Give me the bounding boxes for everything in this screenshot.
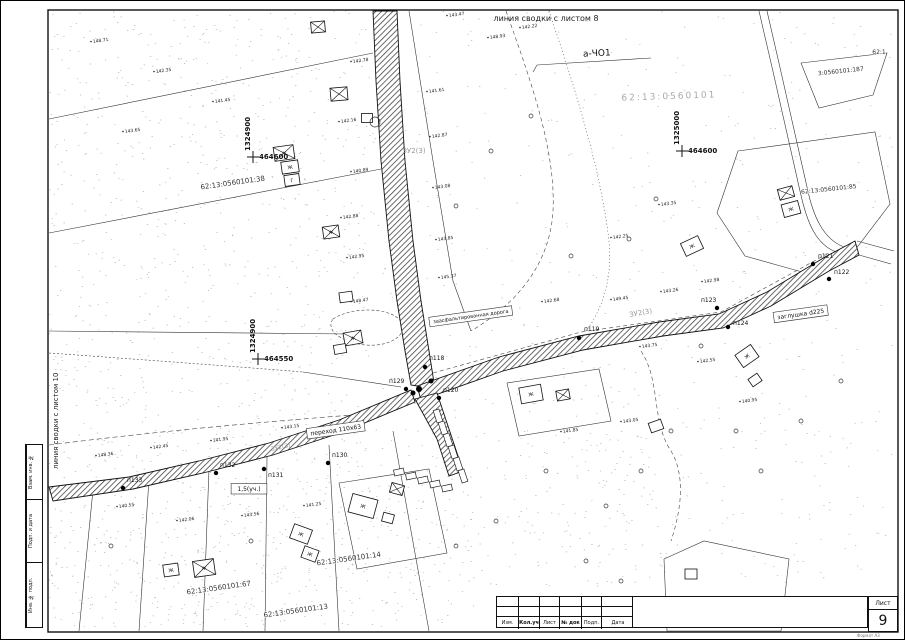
elevation-label: 148.71 <box>92 37 109 45</box>
tree-circle-icon <box>799 419 803 423</box>
stamp-cell: Подп. и дата <box>25 500 43 563</box>
survey-point <box>121 486 125 490</box>
survey-point-label: п133 <box>127 477 143 484</box>
elevation-label: 143.47 <box>448 11 465 19</box>
building: Ж <box>781 201 801 218</box>
building-outline <box>362 114 373 123</box>
elevation-label: 142.87 <box>431 132 448 140</box>
elevation-point <box>340 217 342 219</box>
elevation-label: 142.95 <box>348 253 365 261</box>
survey-point-label: п119 <box>584 326 600 333</box>
parcel-boundary <box>79 490 93 631</box>
elevation-point <box>150 447 152 449</box>
title-block-empty-cell <box>519 607 540 617</box>
elevation-label: 142.16 <box>340 117 357 125</box>
survey-point-label: п131 <box>268 472 284 479</box>
grid-easting-label: 464600 <box>259 153 288 161</box>
title-block-table: Изм.Кол.учЛист№ докПодп.Дата <box>496 596 633 628</box>
parcel-boundary <box>265 457 267 631</box>
elevation-label: 142.55 <box>699 357 716 365</box>
elevation-label: 141.95 <box>212 436 229 444</box>
building <box>556 389 571 401</box>
elevation-point <box>212 101 214 103</box>
tree-circle-icon <box>759 469 763 473</box>
elevation-label: 140.55 <box>118 502 135 510</box>
contour-line <box>549 11 610 331</box>
elevation-point <box>303 505 305 507</box>
junction-node <box>416 386 422 392</box>
elevation-label: 142.25 <box>612 233 629 241</box>
survey-point-label: п120 <box>443 387 459 394</box>
title-block-empty-cell <box>540 607 560 617</box>
crossing-step <box>417 476 428 484</box>
elevation-label: 148.93 <box>489 33 506 41</box>
building <box>330 87 348 101</box>
building: Ж <box>735 344 759 367</box>
elevation-point <box>176 520 178 522</box>
survey-point-label: п129 <box>389 378 405 385</box>
tree-circle-icon <box>489 149 493 153</box>
parcel-boundary <box>533 65 537 72</box>
elevation-label: 141.45 <box>214 97 231 105</box>
elevation-point <box>620 421 622 423</box>
sheet-label: Лист <box>869 597 897 610</box>
title-block-empty-cell <box>497 607 519 617</box>
elevation-label: 142.98 <box>703 277 720 285</box>
stamp-blank <box>35 445 42 499</box>
title-block-empty-cell <box>560 607 582 617</box>
parcel-boundary <box>717 132 890 272</box>
title-block-column-label: Подп. <box>582 617 602 629</box>
tree-circle-icon <box>454 204 458 208</box>
crossing-step <box>393 468 404 476</box>
elevation-label: 143.65 <box>124 127 141 135</box>
elevation-point <box>660 291 662 293</box>
elevation-point <box>350 171 352 173</box>
title-block-column-label: Дата <box>602 617 634 629</box>
cadastral-number-label: 62:1 <box>872 49 886 56</box>
tree-circle-icon <box>699 344 703 348</box>
tree-circle-icon <box>639 469 643 473</box>
building-outline <box>648 419 664 433</box>
survey-point <box>404 387 408 391</box>
building-outline <box>748 373 762 387</box>
road-hatched <box>417 241 859 400</box>
title-block-empty-cell <box>602 607 634 617</box>
elevation-point <box>432 187 434 189</box>
elevation-point <box>338 121 340 123</box>
title-block-column-label: Изм. <box>497 617 519 629</box>
annotation: а-ЧО1 <box>583 48 611 59</box>
tree-circle-icon <box>494 519 498 523</box>
tree-circle-icon <box>569 254 573 258</box>
elevation-label: 142.06 <box>178 516 195 524</box>
survey-point <box>715 306 719 310</box>
contour-line <box>641 351 680 541</box>
elevation-label: 143.56 <box>243 511 260 519</box>
parcel-boundary <box>393 431 429 631</box>
survey-point-label: п124 <box>733 320 749 327</box>
elevation-point <box>350 61 352 63</box>
parcel-boundary <box>759 11 839 253</box>
title-block-column-label: № док <box>560 617 582 629</box>
title-block-empty-cell <box>560 597 582 607</box>
elevation-label: 140.89 <box>352 167 369 175</box>
crossing-step <box>405 472 416 480</box>
cadastral-number-label: 62:13:0560101:85 <box>801 183 857 196</box>
parcel-boundary <box>49 53 373 119</box>
building: Ж <box>192 559 215 578</box>
elevation-point <box>446 15 448 17</box>
title-block-empty-cell <box>519 597 540 607</box>
parcel-boundary <box>49 169 381 233</box>
annotation-text: 1,5(уч.) <box>237 486 260 493</box>
survey-point <box>262 467 266 471</box>
elevation-label: 141.85 <box>562 427 579 435</box>
title-block-empty-cell <box>582 607 602 617</box>
title-block-main-cell <box>633 596 868 628</box>
elevation-point <box>241 515 243 517</box>
elevation-point <box>610 237 612 239</box>
match-line-label-top: линия сводки с листом 8 <box>493 14 598 23</box>
elevation-label: 143.26 <box>662 287 679 295</box>
annotation: заглушка d225 <box>773 305 828 323</box>
elevation-label: 140.95 <box>741 397 758 405</box>
tree-circle-icon <box>249 539 253 543</box>
grid-easting-label: 464600 <box>688 147 717 155</box>
stamp-cell: Инв. № подл. <box>25 563 43 628</box>
building <box>382 512 395 524</box>
annotation: ЗУ2(3) <box>629 307 653 319</box>
tree-circle-icon <box>604 504 608 508</box>
survey-point <box>577 336 581 340</box>
building <box>648 419 664 433</box>
building: Ж <box>348 493 378 518</box>
sheet-number-box: Лист 9 <box>868 596 898 632</box>
survey-point <box>827 277 831 281</box>
elevation-point <box>122 131 124 133</box>
parcel-boundary <box>329 445 339 631</box>
elevation-point <box>560 431 562 433</box>
elevation-point <box>438 277 440 279</box>
title-block-empty-cell <box>602 597 634 607</box>
parcel-boundary <box>203 469 209 631</box>
elevation-label: 142.45 <box>152 443 169 451</box>
elevation-label: 142.68 <box>543 297 560 305</box>
tree-circle-icon <box>109 544 113 548</box>
parcel-boundary <box>303 372 401 387</box>
title-block-empty-cell <box>497 597 519 607</box>
tree-circle-icon <box>734 429 738 433</box>
elevation-point <box>116 506 118 508</box>
grid-northing-label: 1325000 <box>673 111 681 145</box>
parcel-boundary <box>49 331 347 334</box>
road-hatched <box>373 11 435 389</box>
parcel-boundary <box>139 479 149 631</box>
building: Г <box>284 174 300 187</box>
elevation-point <box>350 301 352 303</box>
coordinate-cross: 1324900464550 <box>249 319 293 365</box>
annotation-text: ЗУ2(3) <box>402 147 425 155</box>
annotation-text: а-ЧО1 <box>583 48 611 59</box>
title-block-column-label: Лист <box>540 617 560 629</box>
crossing-step <box>441 484 452 492</box>
building <box>777 186 794 201</box>
elevation-label: 141.25 <box>305 501 322 509</box>
parcel-boundary <box>801 53 887 108</box>
building-outline <box>685 569 697 579</box>
elevation-label: 142.22 <box>521 23 538 31</box>
stamp-label: Взам. инв. № <box>26 445 35 499</box>
survey-point <box>811 262 815 266</box>
elevation-point <box>90 41 92 43</box>
building: Ж <box>163 563 180 577</box>
coordinate-cross: 1324900464600 <box>244 117 288 163</box>
elevation-point <box>739 401 741 403</box>
title-block-column-label: Кол.уч <box>519 617 540 629</box>
tree-circle-icon <box>669 429 673 433</box>
elevation-point <box>541 301 543 303</box>
stamp-label: Инв. № подл. <box>26 563 35 627</box>
stamp-blank <box>35 563 42 627</box>
elevation-label: 141.61 <box>428 87 445 95</box>
building: Ж <box>519 384 543 404</box>
elevation-point <box>95 455 97 457</box>
elevation-label: 143.75 <box>641 342 658 350</box>
building <box>333 344 346 355</box>
elevation-label: 149.45 <box>612 295 629 303</box>
building <box>685 569 697 579</box>
contour-line <box>331 310 403 345</box>
elevation-point <box>519 27 521 29</box>
cadastral-number-label: 62:13:0560101:14 <box>316 550 382 567</box>
title-block-empty-cell <box>582 597 602 607</box>
title-block-empty-cell <box>540 597 560 607</box>
elevation-label: 142.88 <box>342 213 359 221</box>
crossing-step <box>458 469 468 483</box>
grid-easting-label: 464550 <box>264 355 293 363</box>
elevation-point <box>639 346 641 348</box>
stamp-strip: Взам. инв. № Подп. и дата Инв. № подл. <box>25 444 43 628</box>
survey-point <box>437 396 441 400</box>
survey-point-label: п121 <box>818 253 834 260</box>
tree-circle-icon <box>839 379 843 383</box>
survey-point <box>214 471 218 475</box>
elevation-point <box>487 37 489 39</box>
elevation-point <box>426 91 428 93</box>
survey-point-label: п123 <box>701 297 717 304</box>
tree-circle-icon <box>584 559 588 563</box>
survey-point <box>726 325 730 329</box>
cadastral-number-label: 62:13:0560101:13 <box>263 603 328 620</box>
elevation-point <box>281 427 283 429</box>
cadastral-number-label: 62:13:0560101 <box>621 90 716 103</box>
tree-circle-icon <box>619 579 623 583</box>
elevation-point <box>610 299 612 301</box>
elevation-label: 143.85 <box>437 235 454 243</box>
elevation-label: 142.35 <box>155 67 172 75</box>
crossing-step <box>429 480 440 488</box>
cadastral-number-label: 62:13:0560101:67 <box>186 580 251 597</box>
tree-circle-icon <box>529 114 533 118</box>
annotation: 1,5(уч.) <box>231 484 267 495</box>
survey-point-label: п122 <box>834 269 850 276</box>
annotation: заасфальтированная дорога <box>429 306 513 327</box>
building <box>389 482 404 495</box>
elevation-label: 148.47 <box>352 297 369 305</box>
grid-northing-label: 1324900 <box>244 117 252 151</box>
map-canvas: ЖЖГЖЖЖЖЖЖЖЖЖЖЖ 1324900464600132500046460… <box>1 1 905 640</box>
elevation-label: 143.05 <box>622 417 639 425</box>
survey-point-label: п132 <box>220 462 236 469</box>
building: Ж <box>680 236 703 257</box>
survey-point <box>423 365 427 369</box>
elevation-label: 148.36 <box>97 451 114 459</box>
stamp-cell: Взам. инв. № <box>25 444 43 500</box>
parcel-boundary <box>859 255 891 264</box>
tree-circle-icon <box>654 197 658 201</box>
survey-point-label: п130 <box>332 452 348 459</box>
building: Ж <box>290 524 313 545</box>
stamp-label: Подп. и дата <box>26 500 35 562</box>
contour-line <box>471 11 553 331</box>
annotation: ЗУ2(3) <box>402 147 425 155</box>
annotation-text: ЗУ2(3) <box>629 307 653 319</box>
elevation-label: 142.78 <box>352 57 369 65</box>
building: Ж <box>343 330 363 346</box>
building <box>362 114 373 123</box>
match-line-label-left: линия сводки с листом 10 <box>52 373 60 469</box>
elevation-label: 143.15 <box>283 423 300 431</box>
junction-node <box>429 379 434 384</box>
building <box>748 373 762 387</box>
survey-point <box>326 461 330 465</box>
building: Ж <box>281 160 300 174</box>
survey-point-label: п118 <box>429 355 445 362</box>
cadastral-number-label: 62:13:0560101:38 <box>200 175 265 192</box>
junction-node <box>411 391 416 396</box>
tree-circle-icon <box>544 469 548 473</box>
cadastral-number-label: 3:0560101:187 <box>818 66 865 78</box>
building-outline <box>382 512 395 524</box>
format-note: Формат А3 <box>857 633 880 638</box>
building <box>311 21 326 33</box>
elevation-point <box>697 361 699 363</box>
building: Ж <box>322 225 340 239</box>
elevation-point <box>210 440 212 442</box>
grid-northing-label: 1324900 <box>249 319 257 353</box>
building-outline <box>333 344 346 355</box>
elevation-point <box>701 281 703 283</box>
elevation-point <box>429 136 431 138</box>
elevation-point <box>658 204 660 206</box>
drawing-sheet: ЖЖГЖЖЖЖЖЖЖЖЖЖЖ 1324900464600132500046460… <box>0 0 905 640</box>
elevation-point <box>435 239 437 241</box>
stamp-blank <box>35 500 42 562</box>
coordinate-cross: 1325000464600 <box>673 111 717 157</box>
parcel-boundary <box>857 241 894 251</box>
elevation-label: 145.37 <box>440 273 457 281</box>
elevation-label: 143.35 <box>660 200 677 208</box>
sheet-number: 9 <box>869 610 897 632</box>
elevation-point <box>346 257 348 259</box>
elevation-point <box>153 71 155 73</box>
